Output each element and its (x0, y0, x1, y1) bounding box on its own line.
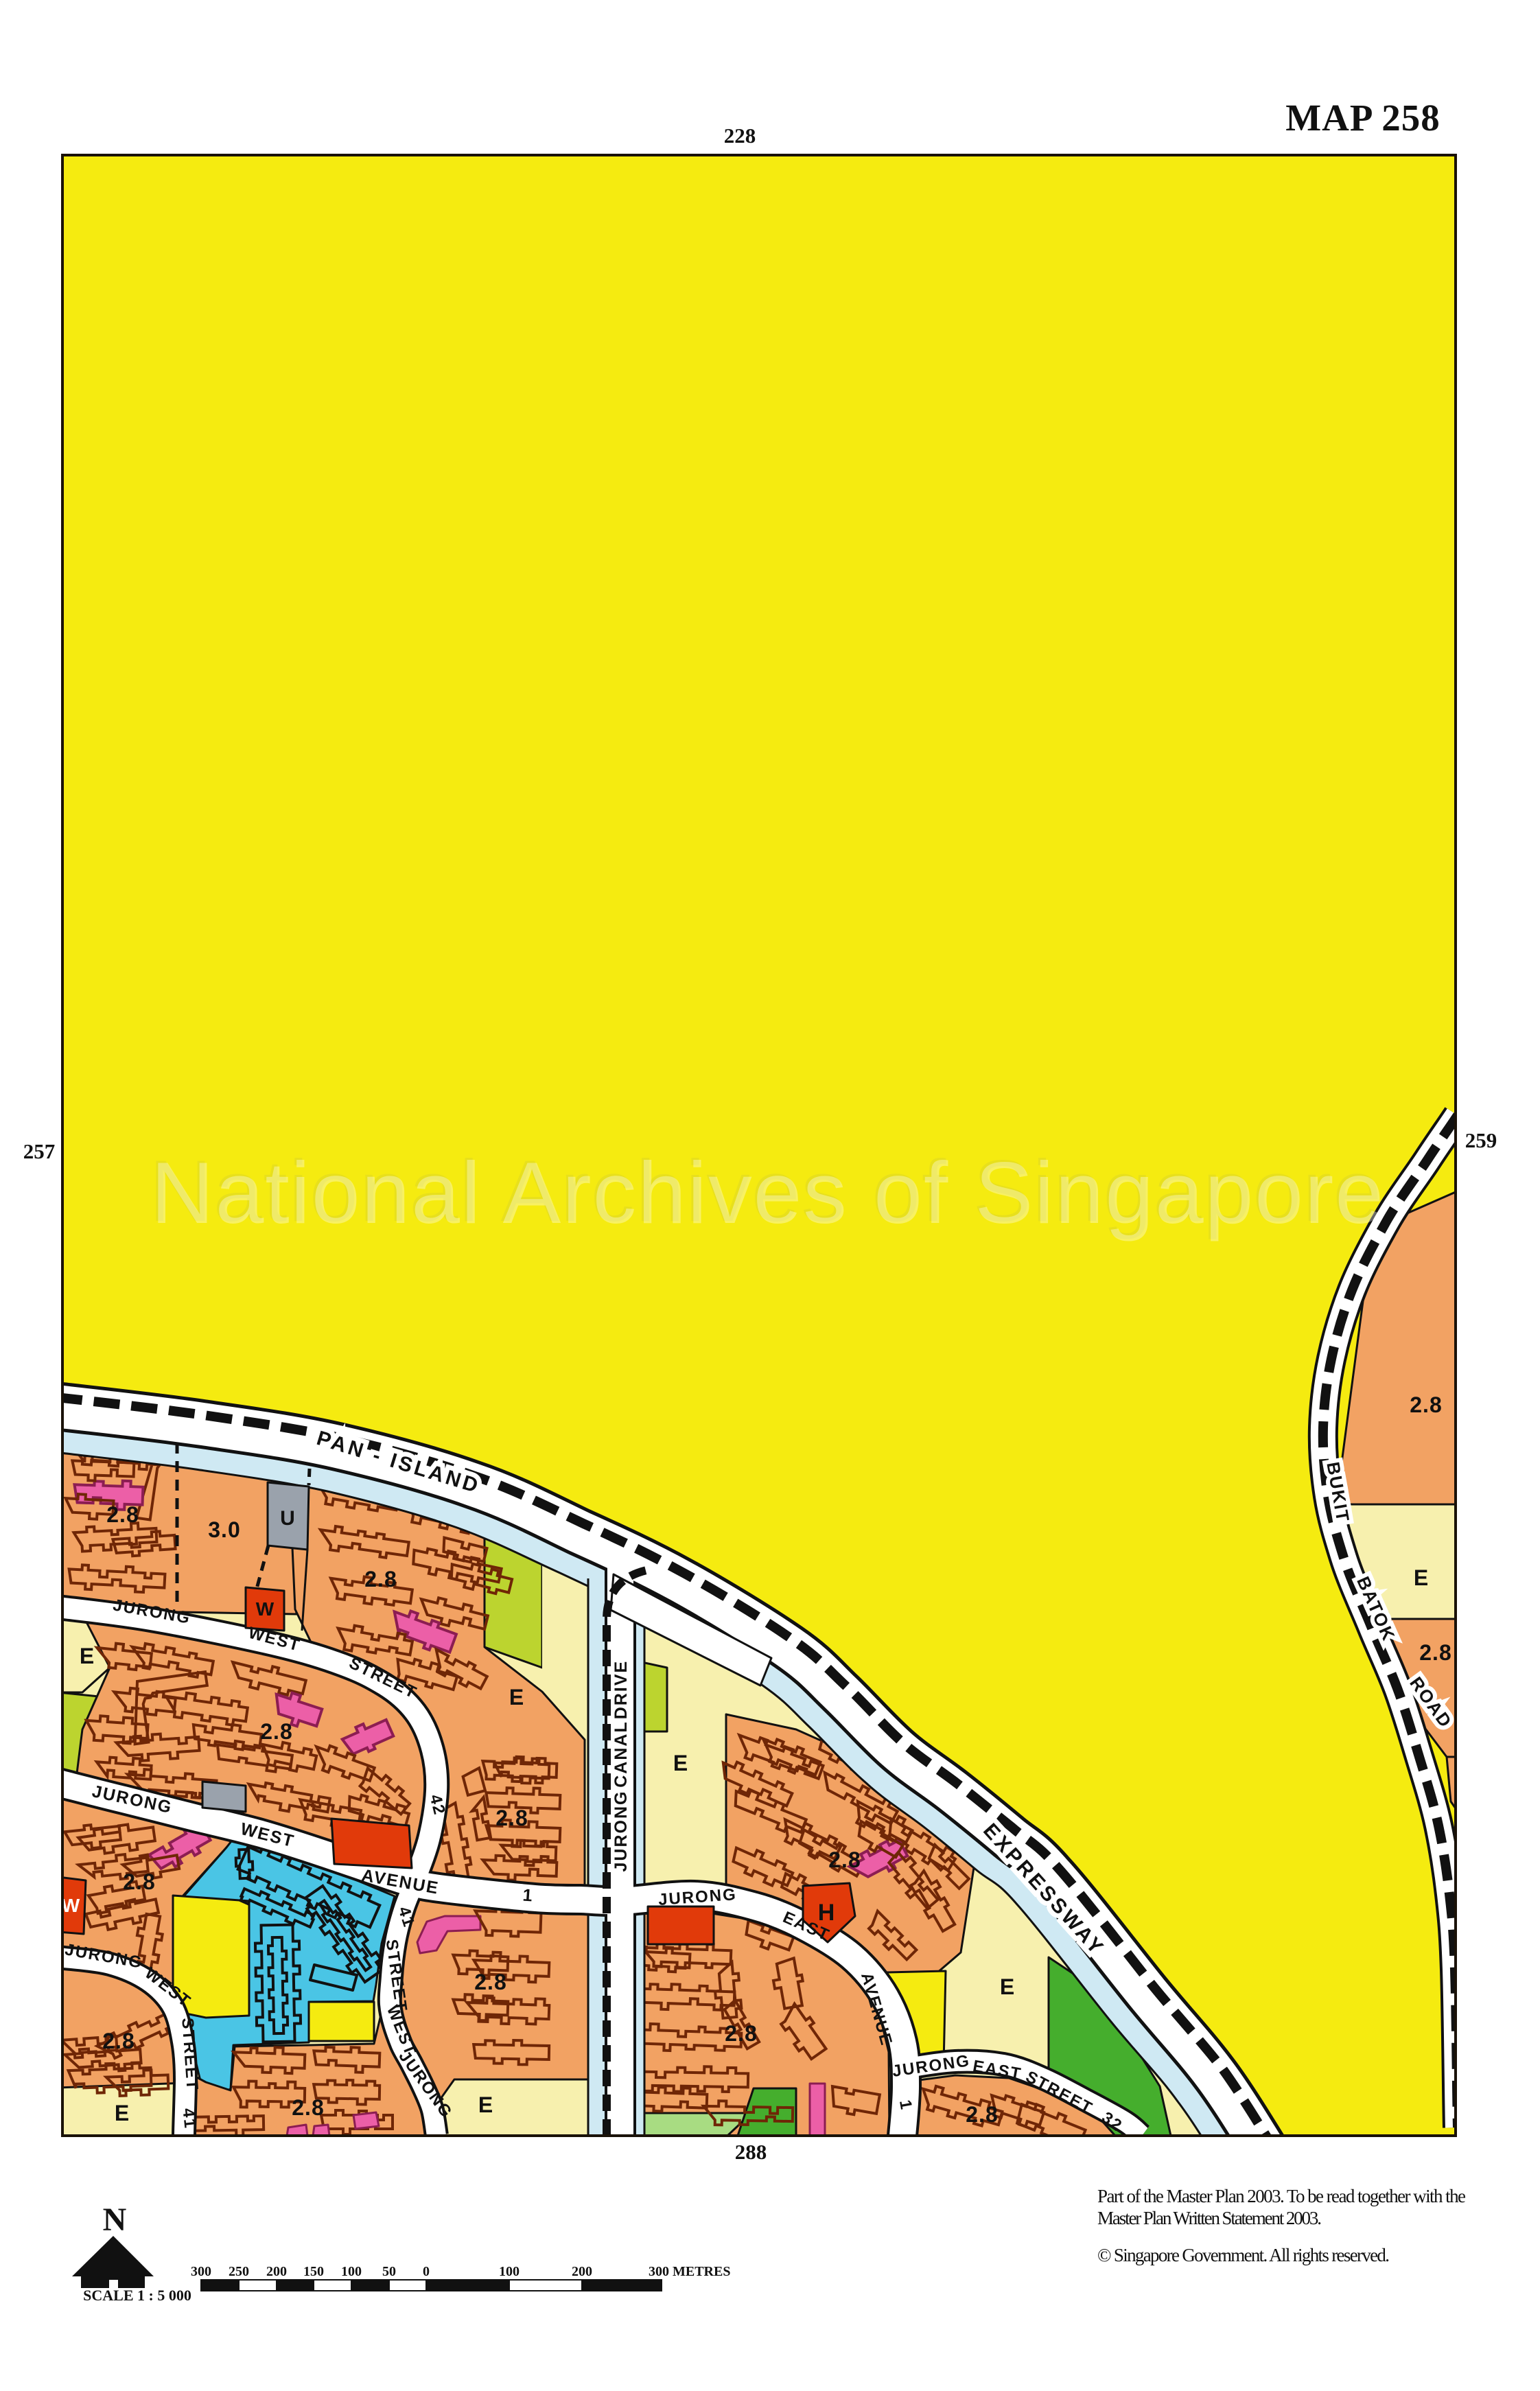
svg-text:2.8: 2.8 (292, 2095, 324, 2120)
svg-text:250: 250 (229, 2264, 249, 2279)
svg-text:W: W (256, 1598, 275, 1620)
svg-text:3.0: 3.0 (208, 1517, 240, 1542)
svg-text:SCALE 1 : 5 000: SCALE 1 : 5 000 (83, 2287, 191, 2304)
svg-text:2.8: 2.8 (260, 1719, 292, 1744)
svg-text:E: E (80, 1644, 95, 1668)
svg-text:2.8: 2.8 (474, 1970, 506, 1994)
svg-text:E: E (478, 2092, 493, 2117)
svg-text:N: N (103, 2202, 127, 2238)
svg-text:2.8: 2.8 (966, 2102, 998, 2127)
svg-text:100: 100 (341, 2264, 362, 2279)
svg-text:National Archives of Singapore: National Archives of Singapore (151, 1144, 1384, 1241)
svg-text:Master Plan Written Statement: Master Plan Written Statement 2003. (1097, 2208, 1322, 2228)
svg-text:200: 200 (572, 2264, 592, 2279)
svg-text:E: E (1414, 1565, 1429, 1590)
svg-text:© Singapore Government. All: © Singapore Government. All rights reser… (1097, 2245, 1390, 2265)
svg-text:1: 1 (522, 1886, 533, 1906)
svg-text:257: 257 (23, 1139, 56, 1163)
svg-text:2.8: 2.8 (1410, 1392, 1442, 1417)
svg-text:2.8: 2.8 (1419, 1640, 1451, 1665)
svg-text:CANAL: CANAL (611, 1721, 631, 1788)
svg-text:DRIVE: DRIVE (611, 1660, 631, 1719)
svg-text:E: E (673, 1751, 688, 1775)
svg-text:E: E (1000, 1974, 1015, 1999)
svg-text:H: H (818, 1900, 835, 1926)
svg-text:150: 150 (303, 2264, 324, 2279)
svg-text:2.8: 2.8 (106, 1502, 139, 1527)
svg-text:200: 200 (266, 2264, 287, 2279)
svg-text:41: 41 (178, 2108, 199, 2130)
svg-text:2.8: 2.8 (364, 1567, 397, 1591)
svg-text:W: W (62, 1895, 80, 1916)
svg-text:E: E (509, 1685, 524, 1710)
svg-text:2.8: 2.8 (123, 1869, 155, 1894)
svg-text:100: 100 (499, 2264, 520, 2279)
svg-text:228: 228 (724, 124, 756, 148)
svg-text:2.8: 2.8 (725, 2021, 757, 2046)
svg-text:50: 50 (382, 2264, 396, 2279)
svg-text:JURONG: JURONG (611, 1791, 631, 1872)
svg-text:Part of the Master Plan 2003.: Part of the Master Plan 2003. To be read… (1097, 2186, 1466, 2206)
svg-text:300 METRES: 300 METRES (649, 2264, 730, 2279)
svg-text:2.8: 2.8 (828, 1847, 861, 1872)
svg-text:U: U (280, 1507, 295, 1530)
svg-text:E: E (115, 2101, 130, 2125)
svg-text:0: 0 (423, 2264, 430, 2279)
svg-text:2.8: 2.8 (102, 2029, 135, 2053)
svg-text:259: 259 (1465, 1128, 1497, 1152)
svg-text:300: 300 (191, 2264, 211, 2279)
svg-text:MAP 258: MAP 258 (1285, 97, 1440, 139)
svg-text:2.8: 2.8 (495, 1806, 528, 1830)
svg-text:288: 288 (735, 2140, 767, 2164)
